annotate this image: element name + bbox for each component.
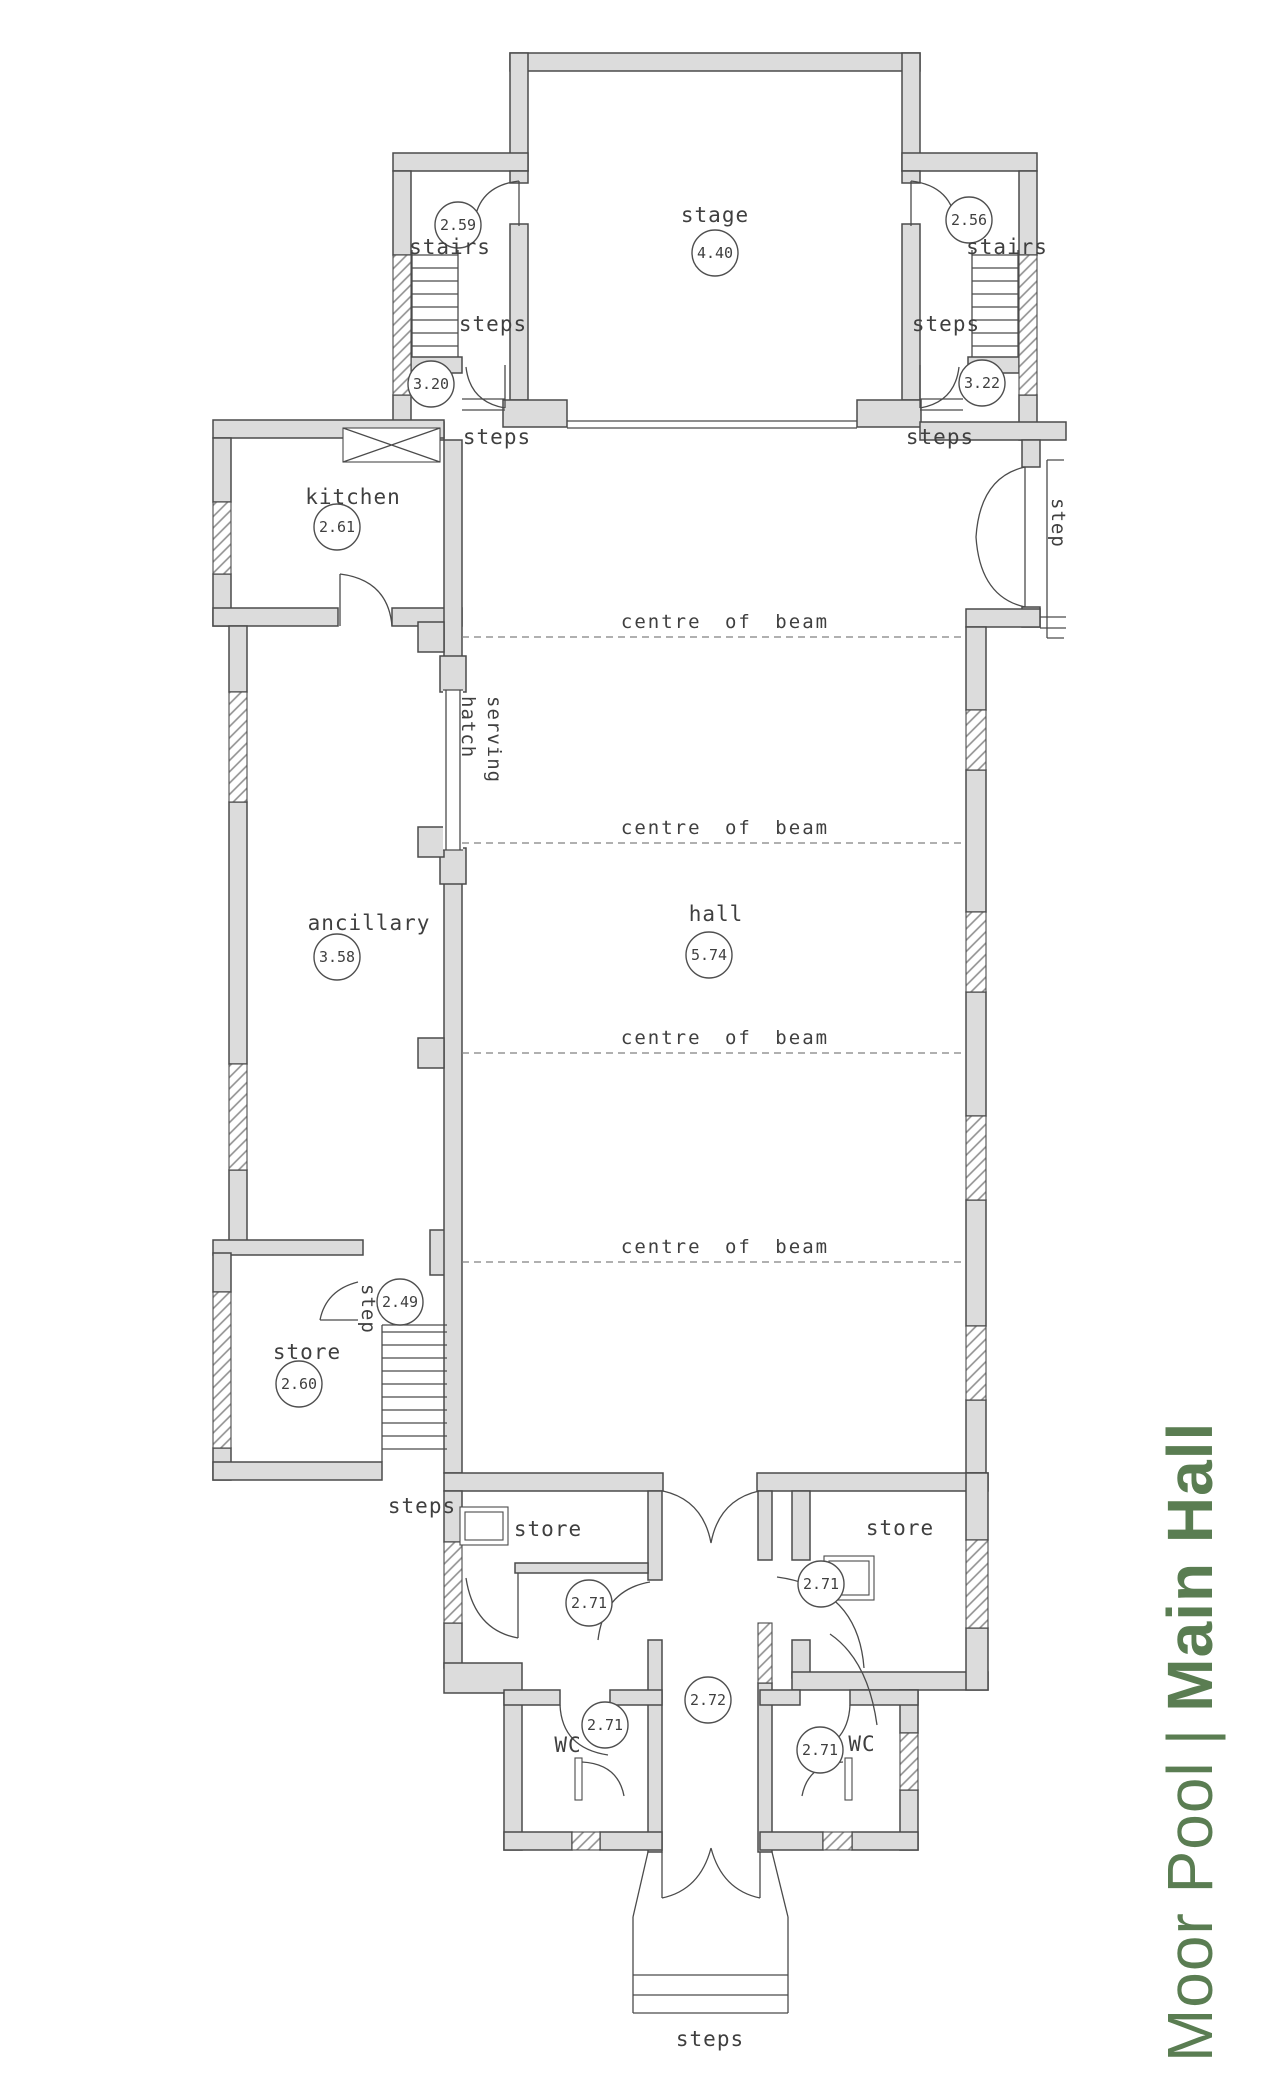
label-centre-of-beam-3: centre of beam (621, 1027, 829, 1049)
dim-kitchen: 2.61 (319, 518, 355, 536)
label-steps-hall-left: steps (463, 425, 531, 449)
page-title: Moor Pool|Main Hall (1154, 1422, 1226, 2062)
exterior-step-northeast (1040, 460, 1066, 638)
dim-wc-right: 2.71 (802, 1741, 838, 1759)
kitchen-counter-box (343, 428, 440, 462)
dim-stairs-right: 2.56 (951, 211, 987, 229)
dim-landing-left: 3.20 (413, 375, 449, 393)
dim-lobby-left: 2.71 (571, 1594, 607, 1612)
stairs-southwest-flight (382, 1325, 447, 1462)
label-step-store: step (357, 1284, 379, 1334)
title-bold: Main Hall (1154, 1422, 1226, 1712)
label-stage: stage (681, 203, 749, 227)
dim-stairs-left: 2.59 (440, 216, 476, 234)
floor-plan-svg: 2.59 2.56 4.40 3.20 3.22 2.61 3.58 5.74 … (0, 0, 1278, 2088)
entrance-steps (633, 1852, 788, 2013)
label-steps-entrance: steps (676, 2027, 744, 2051)
label-stairs-left: stairs (409, 235, 491, 259)
label-hall: hall (689, 902, 744, 926)
label-kitchen: kitchen (305, 485, 401, 509)
stairs-right-flight (972, 250, 1018, 357)
label-steps-hall-right: steps (906, 425, 974, 449)
dim-hall: 5.74 (691, 946, 727, 964)
dim-store-right: 2.71 (803, 1575, 839, 1593)
label-wc-left: WC (554, 1733, 581, 1757)
title-light: Moor Pool (1154, 1761, 1226, 2062)
label-ancillary: ancillary (308, 911, 431, 935)
dim-store-sw: 2.60 (281, 1375, 317, 1393)
dim-ancillary: 3.58 (319, 948, 355, 966)
dim-step-lobby: 2.49 (382, 1293, 418, 1311)
label-steps-room-right: steps (912, 312, 980, 336)
dim-stage: 4.40 (697, 244, 733, 262)
label-steps-room-left: steps (459, 312, 527, 336)
label-stairs-right: stairs (966, 235, 1048, 259)
label-store-sw: store (273, 1340, 341, 1364)
dim-landing-right: 3.22 (964, 374, 1000, 392)
label-step-exterior: step (1047, 498, 1069, 548)
label-store-right: store (866, 1516, 934, 1540)
label-centre-of-beam-1: centre of beam (621, 611, 829, 633)
title-separator: | (1154, 1728, 1226, 1746)
label-centre-of-beam-4: centre of beam (621, 1236, 829, 1258)
label-wc-right: WC (848, 1732, 875, 1756)
stairs-left-flight (412, 250, 458, 357)
label-store-left: store (514, 1517, 582, 1541)
dim-wc-left: 2.71 (587, 1716, 623, 1734)
dim-corridor: 2.72 (690, 1691, 726, 1709)
label-centre-of-beam-2: centre of beam (621, 817, 829, 839)
floor-plan-page: 2.59 2.56 4.40 3.20 3.22 2.61 3.58 5.74 … (0, 0, 1278, 2088)
label-serving-hatch: servinghatch (457, 696, 505, 783)
label-steps-sw: steps (388, 1494, 456, 1518)
